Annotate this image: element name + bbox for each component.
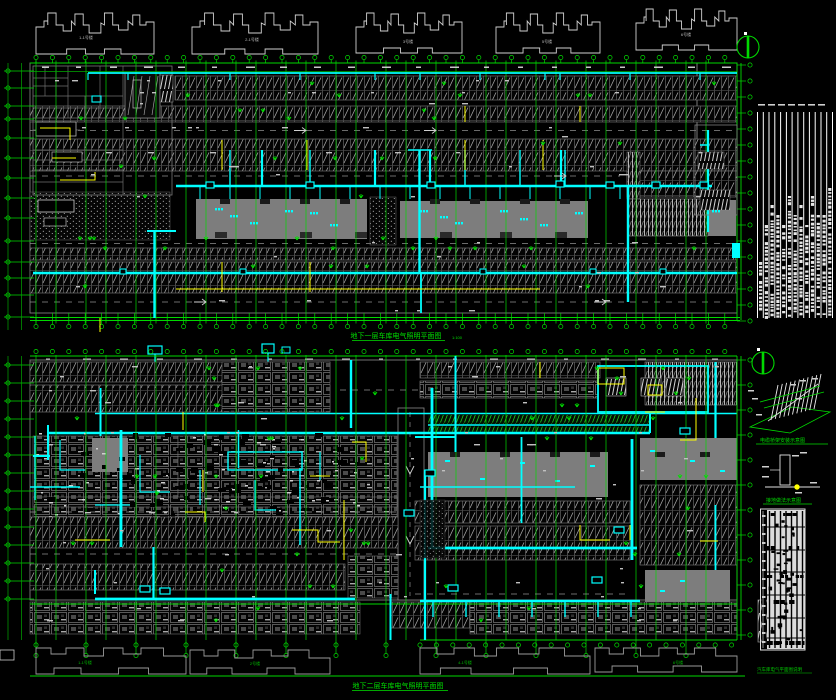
- svg-text:汽车库电气平面图说明: 汽车库电气平面图说明: [757, 666, 802, 673]
- svg-text:1-1号楼: 1-1号楼: [79, 34, 93, 40]
- svg-text:2-1号楼: 2-1号楼: [245, 36, 259, 42]
- svg-text:地下二层车库电气照明平面图: 地下二层车库电气照明平面图: [353, 681, 444, 690]
- svg-text:地下一层车库电气照明平面图: 地下一层车库电气照明平面图: [351, 331, 442, 340]
- svg-text:3号楼: 3号楼: [403, 38, 413, 44]
- svg-text:2号楼: 2号楼: [250, 660, 260, 666]
- svg-text:接地做法示意图: 接地做法示意图: [766, 497, 801, 504]
- svg-text:6号楼: 6号楼: [681, 31, 691, 37]
- svg-text:1-1号楼: 1-1号楼: [78, 659, 92, 665]
- svg-text:1:100: 1:100: [452, 335, 463, 340]
- svg-text:5号楼: 5号楼: [542, 38, 552, 44]
- svg-text:4-1号楼: 4-1号楼: [458, 659, 472, 665]
- svg-text:电缆桥架安装示意图: 电缆桥架安装示意图: [760, 437, 805, 444]
- svg-text:6号楼: 6号楼: [673, 659, 683, 665]
